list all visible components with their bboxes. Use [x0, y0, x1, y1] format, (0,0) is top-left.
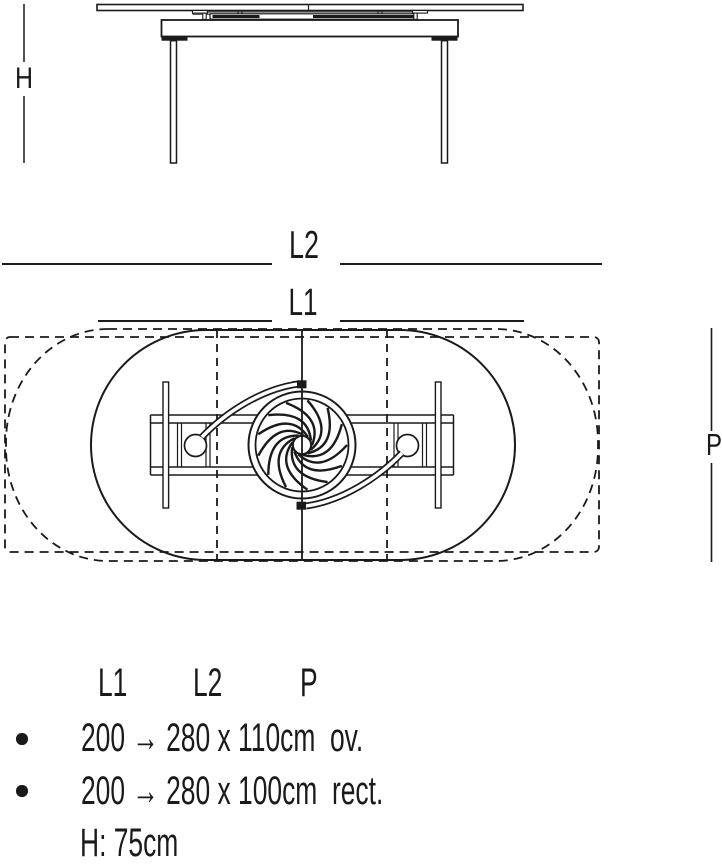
arm-anchor-top — [297, 380, 307, 388]
h-dimension: H — [15, 4, 33, 163]
spec-row-oval: 200 → 280 x 110cm ov. — [81, 718, 509, 758]
l1-dimension: L1 — [98, 282, 524, 324]
arm-anchor-bottom — [297, 502, 307, 510]
spec-column-l1-label: L1 — [98, 663, 127, 703]
spec-row-oval-text: 200 → 280 x 110cm ov. — [81, 718, 363, 758]
leg-bar-left-top — [163, 382, 169, 508]
bullet-icon — [16, 785, 28, 797]
spec-row-rect-text: 200 → 280 x 100cm rect. — [81, 771, 383, 811]
side-view — [97, 5, 523, 164]
stored-leaf-dark-left — [213, 15, 260, 18]
technical-drawing-page: H L2 L1 — [0, 0, 722, 866]
spec-height-note: H: 75cm — [80, 823, 229, 863]
spec-column-p: P — [300, 663, 327, 703]
l2-dimension: L2 — [2, 224, 602, 267]
spec-column-l2: L2 — [193, 663, 238, 703]
leg-bar-right-top — [435, 382, 441, 508]
spec-height-note-text: H: 75cm — [80, 823, 178, 863]
l2-label: L2 — [289, 224, 319, 267]
leg-right-side — [442, 41, 448, 163]
spec-row-rect: 200 → 280 x 100cm rect. — [81, 771, 539, 811]
p-label: P — [706, 427, 722, 462]
leg-left-side — [171, 41, 177, 163]
spec-column-l1: L1 — [98, 663, 143, 703]
table-technical-drawing: H L2 L1 — [0, 0, 722, 640]
p-dimension: P — [706, 328, 722, 562]
top-view — [5, 329, 599, 561]
h-label: H — [15, 62, 33, 95]
apron — [162, 20, 459, 37]
spec-column-p-label: P — [300, 663, 318, 703]
tabletop-side — [97, 5, 523, 11]
l1-label: L1 — [289, 282, 318, 324]
bullet-icon — [16, 733, 28, 745]
hanger-stem-right — [414, 13, 417, 19]
stored-leaf-dark-right — [313, 15, 414, 18]
hanger-stem-left — [203, 13, 206, 19]
spec-column-l2-label: L2 — [193, 663, 222, 703]
